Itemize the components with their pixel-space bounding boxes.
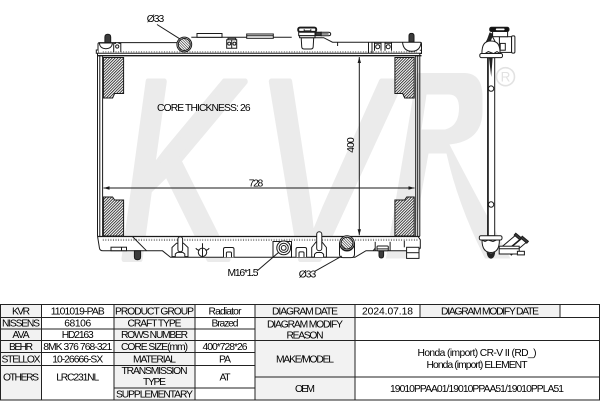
- svg-text:CRAFT TYPE: CRAFT TYPE: [128, 319, 182, 330]
- svg-text:BEHR: BEHR: [9, 342, 33, 353]
- svg-text:DIAGRAM DATE: DIAGRAM DATE: [272, 307, 338, 318]
- svg-text:M16*1.5: M16*1.5: [228, 268, 259, 279]
- svg-text:CORE THICKNESS: 26: CORE THICKNESS: 26: [157, 103, 251, 114]
- svg-text:AT: AT: [220, 373, 232, 384]
- svg-text:400*728*26: 400*728*26: [203, 342, 248, 353]
- svg-text:KVR: KVR: [12, 307, 30, 318]
- svg-text:Honda (import) CR-V II (RD_): Honda (import) CR-V II (RD_): [418, 348, 537, 359]
- svg-text:728: 728: [249, 179, 264, 190]
- svg-text:ROWS NUMBER: ROWS NUMBER: [121, 330, 188, 341]
- svg-text:68106: 68106: [64, 319, 91, 330]
- svg-text:Ø33: Ø33: [147, 14, 165, 25]
- svg-text:10-26666-SX: 10-26666-SX: [52, 355, 103, 366]
- svg-text:MATERIAL: MATERIAL: [133, 355, 176, 366]
- svg-text:DIAGRAM MODIFY: DIAGRAM MODIFY: [267, 320, 343, 331]
- svg-text:LRC231NL: LRC231NL: [56, 373, 99, 384]
- svg-text:V: V: [254, 25, 402, 314]
- svg-text:2024.07.18: 2024.07.18: [362, 307, 413, 318]
- svg-text:CORE SIZE(mm): CORE SIZE(mm): [121, 342, 188, 353]
- svg-text:TRANSMISSION: TRANSMISSION: [122, 366, 188, 377]
- svg-text:STELLOX: STELLOX: [2, 355, 41, 366]
- svg-text:OEM: OEM: [295, 384, 315, 395]
- svg-text:400: 400: [346, 137, 357, 153]
- svg-text:REASON: REASON: [287, 331, 324, 342]
- svg-text:DIAGRAM MODIFY DATE: DIAGRAM MODIFY DATE: [441, 307, 539, 318]
- svg-text:HD2163: HD2163: [62, 330, 94, 341]
- svg-text:Ø33: Ø33: [299, 269, 317, 280]
- svg-text:OTHERS: OTHERS: [3, 373, 39, 384]
- svg-text:1101019-PAB: 1101019-PAB: [51, 307, 105, 318]
- svg-text:TYPE: TYPE: [143, 377, 166, 388]
- svg-text:SUPPLEMENTARY: SUPPLEMENTARY: [116, 389, 193, 400]
- svg-text:R: R: [501, 70, 511, 85]
- svg-text:MAKE/MODEL: MAKE/MODEL: [276, 354, 334, 365]
- svg-text:Brazed: Brazed: [212, 319, 239, 330]
- svg-text:PRODUCT GROUP: PRODUCT GROUP: [115, 307, 194, 318]
- svg-text:AVA: AVA: [12, 330, 29, 341]
- svg-text:Honda (import) ELEMENT: Honda (import) ELEMENT: [427, 360, 529, 371]
- svg-text:NISSENS: NISSENS: [2, 319, 40, 330]
- svg-text:19010PPAA01/19010PPAA51/19010P: 19010PPAA01/19010PPAA51/19010PPLA51: [390, 384, 564, 395]
- svg-text:8MK 376 768-321: 8MK 376 768-321: [43, 342, 112, 353]
- svg-text:Radiator: Radiator: [209, 307, 243, 318]
- svg-text:PA: PA: [219, 355, 231, 366]
